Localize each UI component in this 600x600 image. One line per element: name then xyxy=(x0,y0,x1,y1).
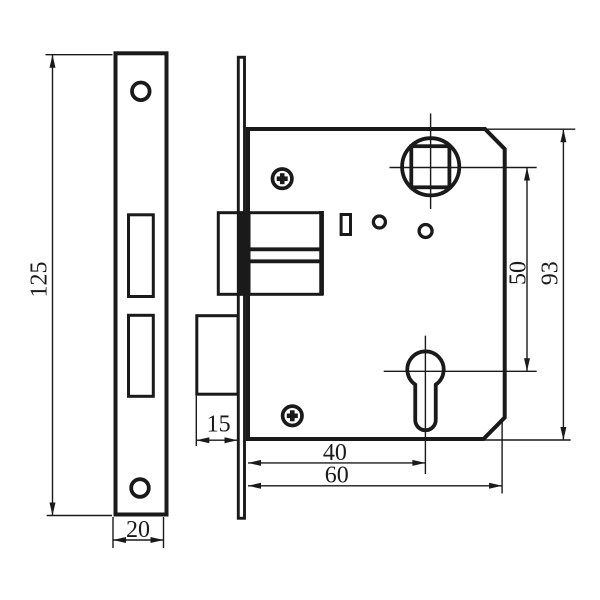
svg-text:50: 50 xyxy=(505,261,531,285)
svg-text:125: 125 xyxy=(27,262,53,298)
svg-text:20: 20 xyxy=(126,517,150,543)
svg-text:93: 93 xyxy=(537,261,563,285)
svg-text:15: 15 xyxy=(207,412,231,438)
svg-text:60: 60 xyxy=(325,463,349,489)
